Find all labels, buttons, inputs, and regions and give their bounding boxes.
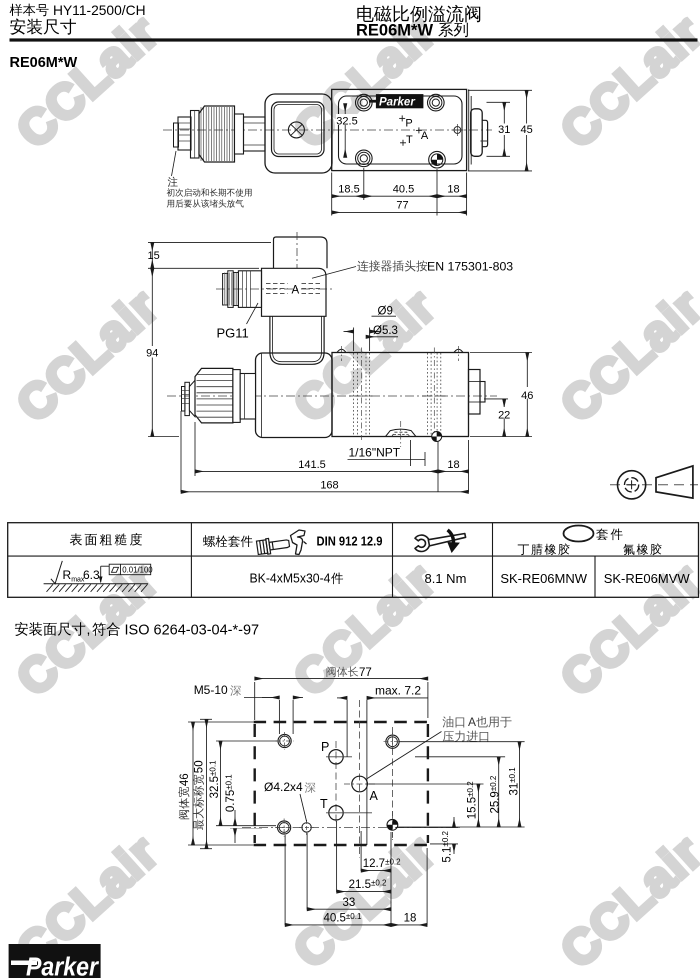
svg-text:32.5±0.1: 32.5±0.1 [209,760,222,798]
svg-text:A: A [468,715,476,729]
svg-text:33: 33 [343,897,356,909]
svg-text:Ø4.2x4: Ø4.2x4 [264,780,303,794]
svg-text:45: 45 [520,124,532,136]
svg-text:EN 175301-803: EN 175301-803 [427,260,513,274]
svg-text:Ø5.3: Ø5.3 [373,325,398,337]
svg-text:SK-RE06MVW: SK-RE06MVW [604,571,691,586]
svg-text:46: 46 [521,390,533,402]
svg-text:8.1 Nm: 8.1 Nm [425,571,467,586]
svg-text:DIN 912 12.9: DIN 912 12.9 [317,535,383,549]
svg-text:32.5: 32.5 [336,116,357,128]
svg-text:RE06M*W: RE06M*W [356,22,433,40]
svg-text:SK-RE06MNW: SK-RE06MNW [500,571,587,586]
svg-text:141.5: 141.5 [298,459,326,471]
svg-text:12.7±0.2: 12.7±0.2 [363,858,401,871]
svg-text:P: P [405,118,412,130]
svg-text:max. 7.2: max. 7.2 [375,684,421,698]
svg-text:1/16"NPT: 1/16"NPT [349,446,401,460]
svg-text:18: 18 [447,184,459,196]
svg-text:BK-4xM5x30-4: BK-4xM5x30-4 [250,571,331,586]
svg-text:40.5±0.1: 40.5±0.1 [324,912,362,925]
svg-text:15: 15 [148,250,160,262]
svg-text:25.9±0.2: 25.9±0.2 [489,775,502,813]
svg-text:HY11-2500/CH: HY11-2500/CH [53,3,146,18]
svg-text:77: 77 [359,667,372,679]
svg-text:6.3: 6.3 [83,568,100,582]
svg-text:A: A [292,285,300,297]
svg-text:0.75±0.1: 0.75±0.1 [224,774,237,812]
svg-text:RE06M*W: RE06M*W [10,55,78,71]
svg-text:50: 50 [193,760,205,773]
svg-text:15.5±0.2: 15.5±0.2 [466,781,479,819]
svg-text:R: R [63,568,72,582]
svg-text:94: 94 [146,348,158,360]
svg-text:Parker: Parker [379,96,415,108]
svg-text:Ø9: Ø9 [378,306,393,318]
svg-text:18: 18 [404,913,417,925]
svg-text:,: , [87,621,91,637]
svg-text:T: T [406,134,413,146]
svg-text:PG11: PG11 [217,326,249,341]
svg-text:A: A [370,789,379,803]
svg-text:31±0.1: 31±0.1 [508,767,521,796]
svg-text:168: 168 [320,480,338,492]
svg-text:ISO 6264-03-04-*-97: ISO 6264-03-04-*-97 [125,623,260,639]
svg-text:18: 18 [447,459,459,471]
svg-text:40.5: 40.5 [393,184,414,196]
svg-text:M5-10: M5-10 [194,683,228,697]
svg-text:46: 46 [179,773,191,786]
svg-text:T: T [320,797,328,811]
svg-text:0.01/100: 0.01/100 [122,566,153,575]
svg-text:22: 22 [498,410,510,422]
svg-text:P: P [321,740,329,754]
svg-text:Parker: Parker [26,954,100,978]
svg-text:77: 77 [396,200,408,212]
svg-text:21.5±0.2: 21.5±0.2 [349,879,387,892]
svg-text:31: 31 [498,124,510,136]
svg-text:18.5: 18.5 [338,184,359,196]
svg-text:5.1±0.2: 5.1±0.2 [441,830,454,862]
svg-text:A: A [421,130,429,142]
